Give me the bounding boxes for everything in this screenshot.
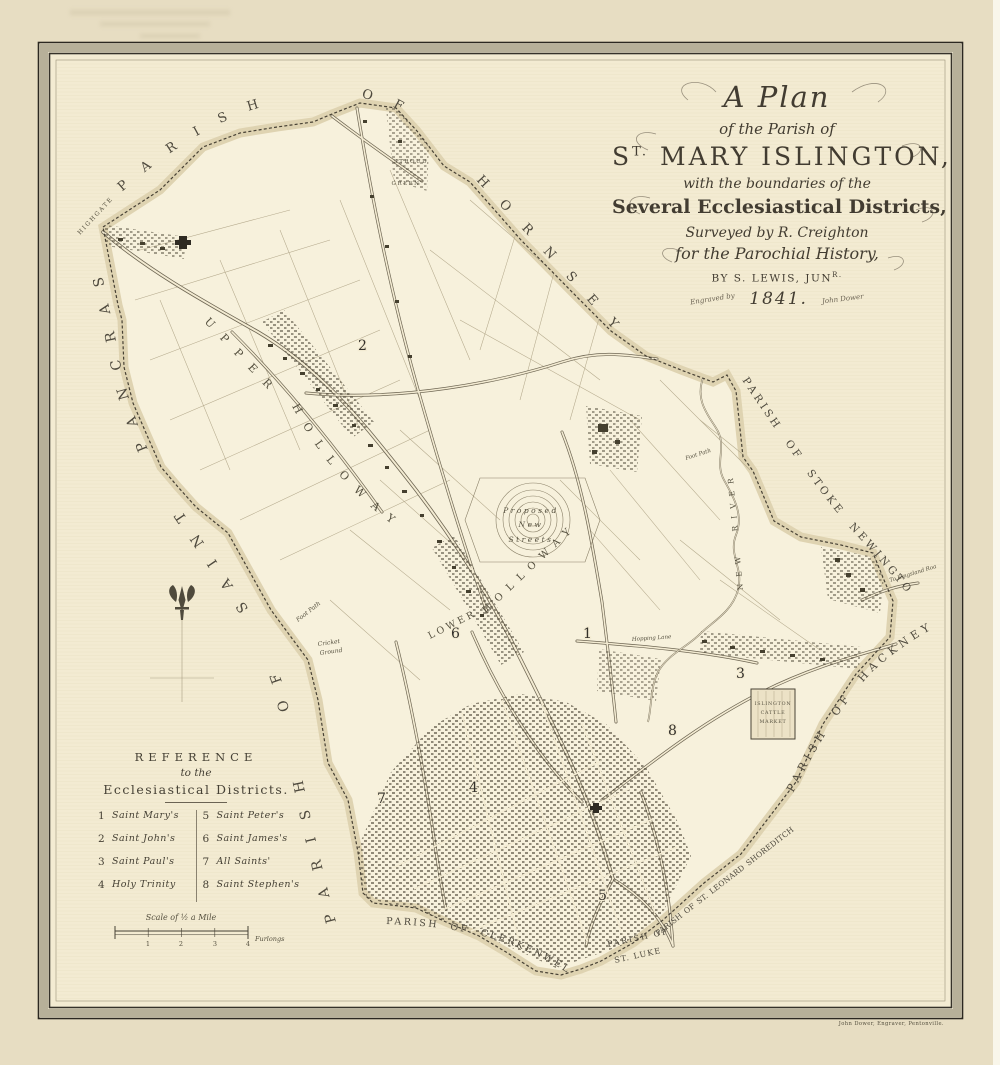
engraver-imprint: John Dower, Engraver, Pentonville. bbox=[838, 1021, 944, 1027]
legend-item: 2Saint John's bbox=[98, 833, 196, 845]
legend-item: 1Saint Mary's bbox=[98, 810, 196, 822]
title-st-mary-islington: ST. MARY ISLINGTON, bbox=[612, 142, 942, 171]
title-parochial-history: for the Parochial History, bbox=[612, 244, 942, 263]
engraved-by-note: Engraved by bbox=[690, 291, 736, 306]
label-new: New bbox=[518, 520, 544, 529]
label-green: GREEN bbox=[392, 181, 421, 187]
title-of-the-parish-of: of the Parish of bbox=[612, 120, 942, 138]
scale-tick-1: 1 bbox=[146, 940, 150, 948]
legend-item: 5Saint Peter's bbox=[203, 810, 301, 822]
reference-column-2: 5Saint Peter's 6Saint James's 7All Saint… bbox=[197, 810, 301, 902]
legend-item: 4Holy Trinity bbox=[98, 879, 196, 891]
district-number-4: 4 bbox=[469, 780, 478, 796]
title-year: 1841. bbox=[749, 289, 808, 309]
sheet-edge bbox=[993, 0, 1000, 1065]
label-streets: Streets bbox=[509, 535, 554, 544]
label-stroud: STROUD bbox=[394, 159, 428, 165]
map-sheet: Scale of ½ a Mile 1 2 3 4 Furlongs PARIS… bbox=[0, 0, 1000, 1065]
district-number-5: 5 bbox=[598, 888, 607, 904]
title-cartouche: A Plan of the Parish of ST. MARY ISLINGT… bbox=[612, 80, 942, 309]
label-cattle: CATTLE bbox=[761, 710, 786, 716]
title-a-plan: A Plan bbox=[612, 80, 942, 114]
district-number-7: 7 bbox=[377, 791, 386, 807]
district-number-3: 3 bbox=[736, 666, 745, 682]
scale-tick-2: 2 bbox=[179, 940, 183, 948]
reference-column-1: 1Saint Mary's 2Saint John's 3Saint Paul'… bbox=[92, 810, 197, 902]
reference-subtitle: to the bbox=[92, 767, 300, 779]
district-number-1: 1 bbox=[583, 626, 592, 642]
district-number-6: 6 bbox=[451, 626, 460, 642]
engraver-name-note: John Dower bbox=[822, 292, 864, 305]
district-number-8: 8 bbox=[668, 723, 677, 739]
legend-item: 8Saint Stephen's bbox=[203, 879, 301, 891]
title-ecclesiastical-districts: Several Ecclesiastical Districts, bbox=[612, 196, 942, 218]
title-surveyed-by: Surveyed by R. Creighton bbox=[612, 225, 942, 241]
scale-unit: Furlongs bbox=[254, 935, 285, 943]
label-market: MARKET bbox=[759, 719, 786, 725]
label-islington: ISLINGTON bbox=[755, 701, 792, 707]
legend-item: 7All Saints' bbox=[203, 856, 301, 868]
reference-legend: REFERENCE to the Ecclesiastical District… bbox=[92, 750, 300, 902]
legend-item: 3Saint Paul's bbox=[98, 856, 196, 868]
title-with-boundaries: with the boundaries of the bbox=[612, 176, 942, 192]
title-by-s-lewis: BY S. LEWIS, JUNR. bbox=[612, 271, 942, 285]
scale-tick-4: 4 bbox=[246, 940, 250, 948]
legend-item: 6Saint James's bbox=[203, 833, 301, 845]
reference-title: REFERENCE bbox=[92, 750, 300, 764]
district-number-2: 2 bbox=[358, 338, 367, 354]
scale-title: Scale of ½ a Mile bbox=[146, 913, 217, 922]
reference-rule bbox=[165, 802, 227, 803]
label-proposed: Proposed bbox=[502, 506, 559, 515]
title-year-row: Engraved by 1841. John Dower bbox=[612, 289, 942, 309]
scale-tick-3: 3 bbox=[213, 940, 217, 948]
reference-heading: Ecclesiastical Districts. bbox=[92, 782, 300, 797]
